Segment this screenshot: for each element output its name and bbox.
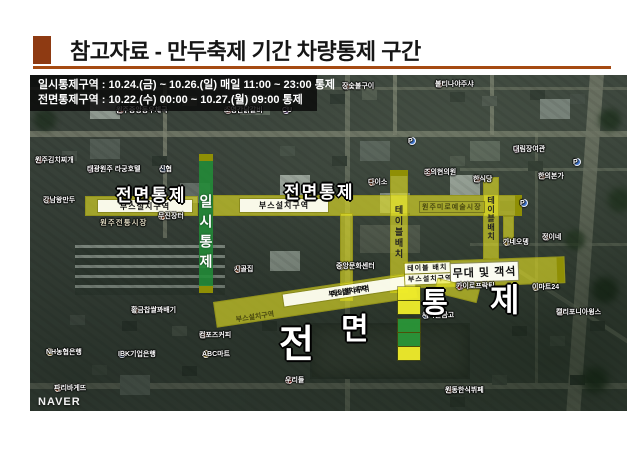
poi-text: 캘리포니아윙스 (556, 307, 601, 317)
poi-text: 컴포즈커피 (199, 330, 231, 340)
poi-text: P (408, 138, 413, 145)
control-schedule-box: 일시통제구역 : 10.24.(금) ~ 10.26.(일) 매일 11:00 … (30, 75, 317, 111)
poi-text: 조의현의원 (424, 167, 456, 177)
poi-text: 대림장여관 (513, 144, 545, 154)
poi-text: ABC마트 (202, 349, 230, 359)
booth-zone-label-small: 부스설치구역 (235, 309, 275, 325)
permit-box (398, 319, 420, 332)
poi-text: 우리들 (285, 375, 304, 385)
poi-text: 이마트24 (532, 282, 559, 292)
temporary-control-label: 일시통제 (199, 182, 213, 286)
poi-text: NH농협은행 (46, 347, 82, 357)
booth-zone-label: 부스설치구역 (328, 282, 371, 299)
poi-text: IBK기업은행 (118, 349, 156, 359)
temporary-schedule-line: 일시통제구역 : 10.24.(금) ~ 10.26.(일) 매일 11:00 … (38, 78, 309, 93)
permit-box (398, 301, 420, 314)
poi-text: 강남왕만두 (43, 195, 75, 205)
poi-text: 한식당 (473, 174, 492, 184)
poi-text: 장숯불구이 (342, 81, 374, 91)
poi-text: 원주김치찌개 (35, 155, 74, 165)
big-letter-je: 제 (490, 275, 519, 321)
permit-box (398, 287, 420, 300)
map-road (490, 75, 494, 135)
table-zone-label: 테이블배치 (483, 179, 499, 257)
permit-box (398, 333, 420, 346)
big-letter-jeon: 전 (279, 313, 314, 368)
naver-attribution: NAVER (38, 396, 81, 408)
school-block (310, 323, 470, 379)
bar-cap (557, 257, 565, 282)
poi-text: 태광원주 라궁호텔 (87, 164, 140, 174)
poi-text: 무진장터 (158, 211, 184, 221)
big-letter-myeon: 면 (341, 304, 369, 348)
page-title: 참고자료 - 만두축제 기간 차량통제 구간 (70, 34, 421, 66)
poi-text: 황금찹쌀꽈배기 (131, 305, 176, 315)
table-zone-label: 테이블 배치 (405, 262, 450, 274)
temporary-control-bar: 일시통제 (199, 154, 213, 293)
poi-text: 신협 (159, 164, 172, 174)
permit-column (398, 287, 420, 361)
title-underline (33, 66, 611, 69)
full-control-label-left: 전면통제 (116, 181, 187, 206)
poi-text: P (573, 159, 578, 166)
poi-text: 불티나야주샤 (435, 79, 474, 89)
map-road (30, 383, 627, 389)
bar-cap (390, 170, 408, 176)
full-control-label-mid: 전면통제 (284, 178, 355, 203)
permit-box (398, 347, 420, 360)
full-schedule-line: 전면통제구역 : 10.22.(수) 00:00 ~ 10.27.(월) 09:… (38, 93, 309, 108)
poi-text: 원주전통시장 (100, 217, 147, 228)
map-road (393, 75, 397, 135)
poi-text: 다이소 (368, 177, 387, 187)
slide: 참고자료 - 만두축제 기간 차량통제 구간 부스설치구역 일시통제 부스설치구… (0, 0, 643, 454)
poi-text: 원동한식뷔페 (445, 385, 484, 395)
poi-text: 시골집 (234, 264, 253, 274)
poi-text: 카이로프락틱 (456, 281, 495, 291)
poi-text: 가네오뎅 (503, 237, 529, 247)
title-accent-square (33, 36, 51, 64)
table-zone-vertical-2: 테이블배치 (483, 177, 499, 259)
poi-text: 한의본가 (538, 171, 564, 181)
poi-text: P (520, 200, 525, 207)
market-street-label: 원주미로예술시장 (419, 201, 485, 213)
poi-text: 파리바게뜨 (54, 383, 86, 393)
big-letter-tong: 통 (422, 281, 448, 321)
satellite-map: 부스설치구역 일시통제 부스설치구역 원주미로예술시장 테이블배치 테이블배치 … (30, 75, 627, 411)
poi-text: 정이네 (542, 232, 561, 242)
poi-text: 중앙문화센터 (336, 261, 375, 271)
control-zone-bottom: 테이블 배치 부스설치구역 부스설치구역 (213, 272, 418, 328)
bar-cap (199, 286, 213, 293)
bar-cap (199, 154, 213, 161)
